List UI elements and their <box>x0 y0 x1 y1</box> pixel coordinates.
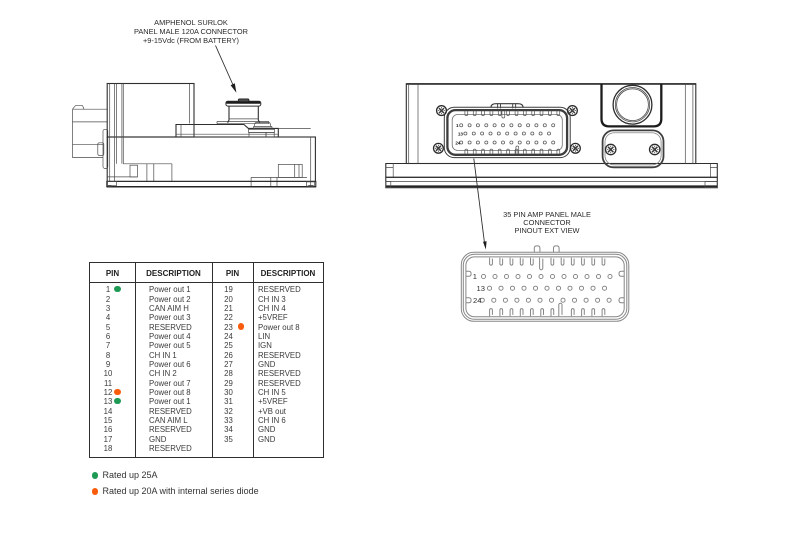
svg-text:24: 24 <box>473 296 481 305</box>
svg-text:13: 13 <box>477 284 485 293</box>
svg-text:1: 1 <box>473 272 477 281</box>
svg-text:1: 1 <box>456 123 459 128</box>
svg-text:13: 13 <box>458 131 464 136</box>
svg-text:24: 24 <box>455 140 461 145</box>
